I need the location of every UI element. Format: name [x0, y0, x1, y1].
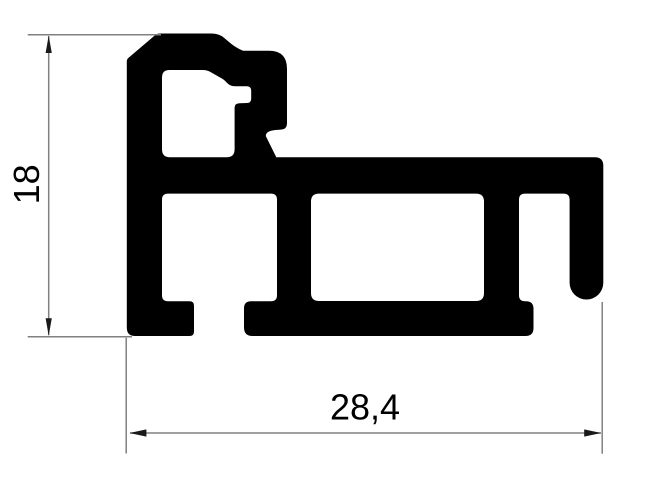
svg-text:18: 18	[6, 164, 47, 204]
svg-text:28,4: 28,4	[330, 386, 400, 427]
